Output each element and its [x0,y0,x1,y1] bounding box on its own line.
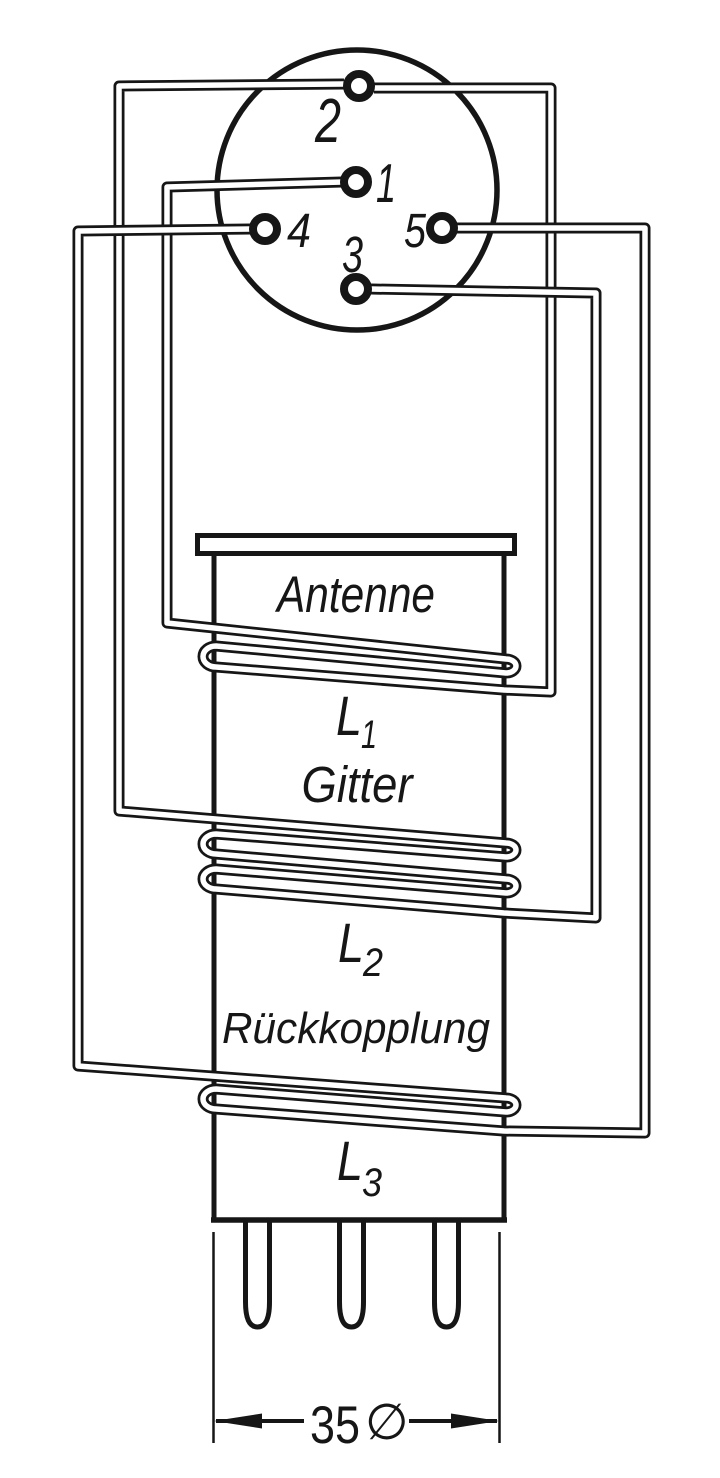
winding-label-antenne: Antenne [275,566,435,623]
pin-1-label: 1 [376,152,396,214]
pin-5-label: 5 [404,205,426,258]
dimension-arrowhead-right [451,1414,499,1429]
pin-3-label: 3 [342,226,363,283]
coil-label-l1-subscript: 1 [361,713,377,757]
coil-former-top-flange [198,536,515,554]
pin-5-terminal [430,216,454,240]
diagram-canvas: 35 ∅ 2 1 4 [0,0,720,1478]
coil-label-l2-main: L [338,911,364,974]
dimension-arrowhead-left [214,1414,262,1429]
pin-4-label: 4 [287,205,311,258]
coil-label-l3-subscript: 3 [362,1161,382,1205]
mounting-prong-middle [340,1221,364,1327]
winding-label-gitter: Gitter [302,756,415,813]
coil-label-l1-main: L [336,684,362,747]
pin-2-label: 2 [314,87,341,156]
pin-4-terminal [253,217,277,241]
pin-1-terminal [344,170,368,194]
diameter-symbol: ∅ [365,1394,409,1450]
mounting-prong-left [246,1221,270,1327]
coil-winding-diagram: 35 ∅ 2 1 4 [0,0,720,1478]
dimension-value: 35 [310,1396,360,1455]
mounting-prong-right [435,1221,459,1327]
winding-label-rueckkopplung: Rückkopplung [222,1004,490,1053]
coil-label-l2-subscript: 2 [362,941,383,985]
coil-label-l3-main: L [337,1129,363,1192]
pin-2-terminal [347,74,371,98]
